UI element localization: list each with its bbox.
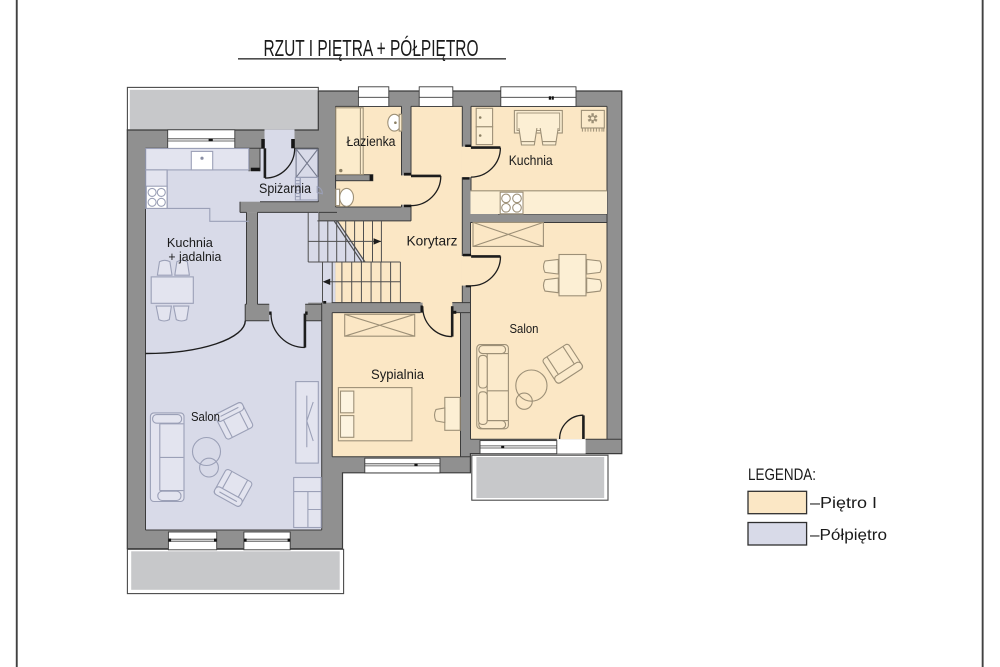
svg-text:–Półpiętro: –Półpiętro <box>810 527 887 544</box>
svg-text:–Piętro I: –Piętro I <box>810 495 877 512</box>
svg-text:Korytarz: Korytarz <box>407 233 458 249</box>
svg-text:Kuchnia: Kuchnia <box>509 152 553 168</box>
svg-text:Salon: Salon <box>191 410 220 424</box>
svg-text:Sypialnia: Sypialnia <box>371 367 424 382</box>
svg-text:RZUT I PIĘTRA + PÓŁPIĘTRO: RZUT I PIĘTRA + PÓŁPIĘTRO <box>264 35 479 61</box>
svg-text:LEGENDA:: LEGENDA: <box>748 465 816 484</box>
svg-text:Kuchnia: Kuchnia <box>167 235 214 250</box>
svg-text:Salon: Salon <box>510 322 539 336</box>
svg-text:Spiżarnia: Spiżarnia <box>259 181 311 196</box>
svg-text:Łazienka: Łazienka <box>347 134 396 149</box>
svg-text:+ jadalnia: + jadalnia <box>168 249 222 264</box>
